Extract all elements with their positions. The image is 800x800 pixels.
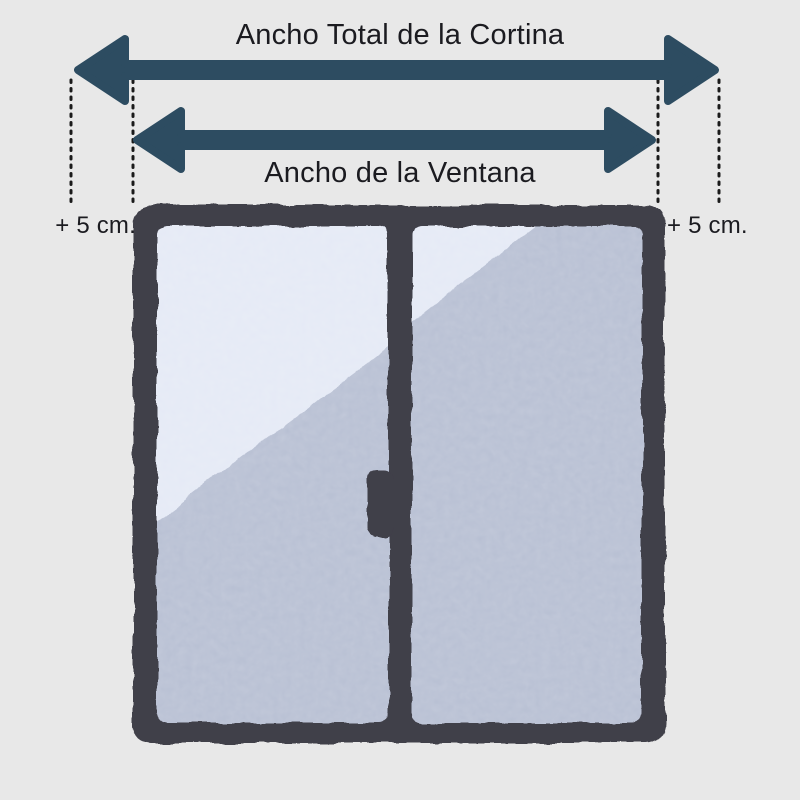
curtain-width-label: Ancho Total de la Cortina <box>0 20 800 52</box>
left-margin-label: + 5 cm. <box>0 213 136 239</box>
curtain-measurement-diagram: Ancho Total de la Cortina Ancho de la Ve… <box>0 0 800 800</box>
window-width-label: Ancho de la Ventana <box>0 158 800 190</box>
diagram-canvas-svg <box>0 0 800 800</box>
right-margin-label: + 5 cm. <box>667 213 748 239</box>
window-illustration <box>133 205 665 743</box>
window-handle <box>368 470 392 537</box>
